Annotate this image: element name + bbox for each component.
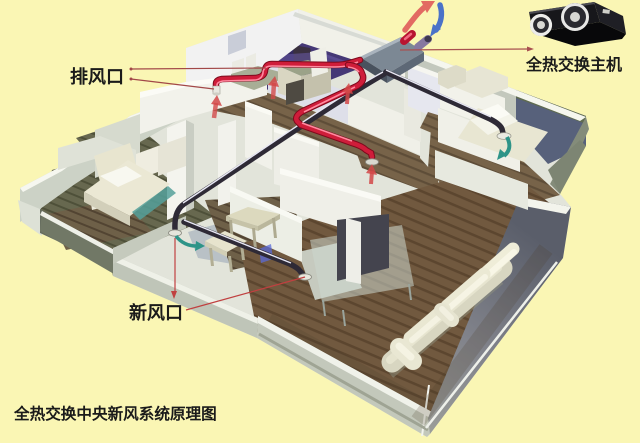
svg-text:新风口: 新风口 <box>129 302 183 323</box>
svg-text:排风口: 排风口 <box>70 66 124 87</box>
svg-text:全热交换中央新风系统原理图: 全热交换中央新风系统原理图 <box>13 404 217 423</box>
svg-text:全热交换主机: 全热交换主机 <box>525 55 622 74</box>
